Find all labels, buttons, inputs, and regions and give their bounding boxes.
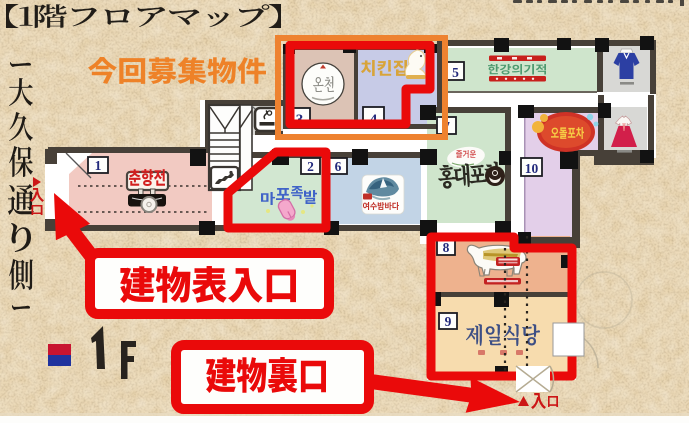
svg-text:2: 2	[307, 159, 314, 174]
svg-text:8: 8	[443, 240, 450, 255]
svg-text:1: 1	[95, 158, 102, 173]
svg-text:10: 10	[525, 161, 539, 176]
svg-text:9: 9	[445, 314, 452, 329]
svg-text:6: 6	[335, 159, 342, 174]
svg-text:5: 5	[452, 65, 459, 80]
